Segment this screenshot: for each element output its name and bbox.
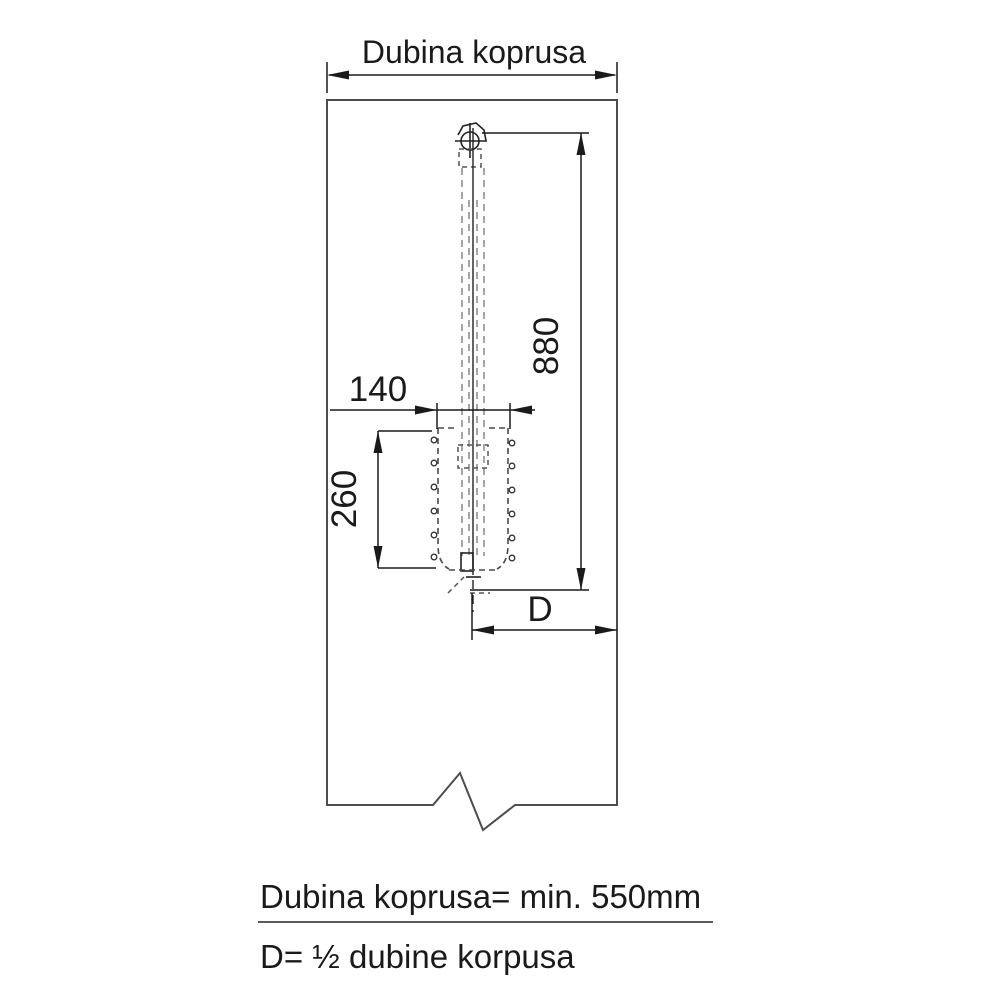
hook-icon: [431, 508, 437, 514]
arrow-left-icon: [510, 406, 532, 415]
arrow-up-icon: [577, 133, 586, 155]
arrow-down-icon: [374, 546, 383, 568]
hook-icon: [431, 437, 437, 443]
hook-icon: [431, 532, 437, 538]
basket-hooks-right: [509, 440, 515, 561]
cabinet-depth-label: Dubina koprusa: [362, 34, 586, 70]
dim-140-value: 140: [349, 370, 407, 409]
notes: Dubina koprusa= min. 550mm D= ½ dubine k…: [258, 878, 713, 975]
hook-icon: [431, 484, 437, 490]
arrow-left-icon: [327, 71, 349, 80]
dim-260-value: 260: [325, 470, 364, 528]
dimension-D: D: [472, 590, 617, 640]
hook-icon: [431, 554, 437, 560]
basket-right-wall: [497, 428, 508, 569]
pullout-rod: [448, 123, 490, 612]
hook-icon: [509, 463, 515, 469]
cabinet-body: [327, 100, 617, 830]
arrow-down-icon: [577, 568, 586, 590]
cabinet-outline: [327, 100, 617, 830]
dimension-140: 140: [330, 370, 535, 429]
hook-icon: [509, 555, 515, 561]
arrow-up-icon: [374, 431, 383, 453]
arrow-right-icon: [595, 626, 617, 635]
note-line1: Dubina koprusa= min. 550mm: [260, 878, 701, 915]
dimension-cabinet-depth: Dubina koprusa: [327, 34, 617, 93]
dimension-880: 880: [470, 133, 589, 590]
foot-wedge: [448, 577, 464, 593]
arrow-right-icon: [595, 71, 617, 80]
note-line2: D= ½ dubine korpusa: [260, 938, 575, 975]
hook-icon: [509, 511, 515, 517]
hook-icon: [509, 487, 515, 493]
basket-hooks-left: [431, 437, 437, 560]
hook-icon: [509, 440, 515, 446]
arrow-right-icon: [415, 406, 437, 415]
basket-left-wall: [438, 428, 449, 569]
dimension-260: 260: [325, 431, 436, 568]
arrow-left-icon: [472, 626, 494, 635]
hook-icon: [431, 460, 437, 466]
technical-drawing: Dubina koprusa: [0, 0, 1001, 1001]
rod-top-bracket: [455, 123, 487, 167]
rod-foot: [448, 553, 490, 593]
dim-D-value: D: [527, 590, 552, 629]
dim-880-value: 880: [527, 317, 566, 375]
hook-icon: [509, 535, 515, 541]
